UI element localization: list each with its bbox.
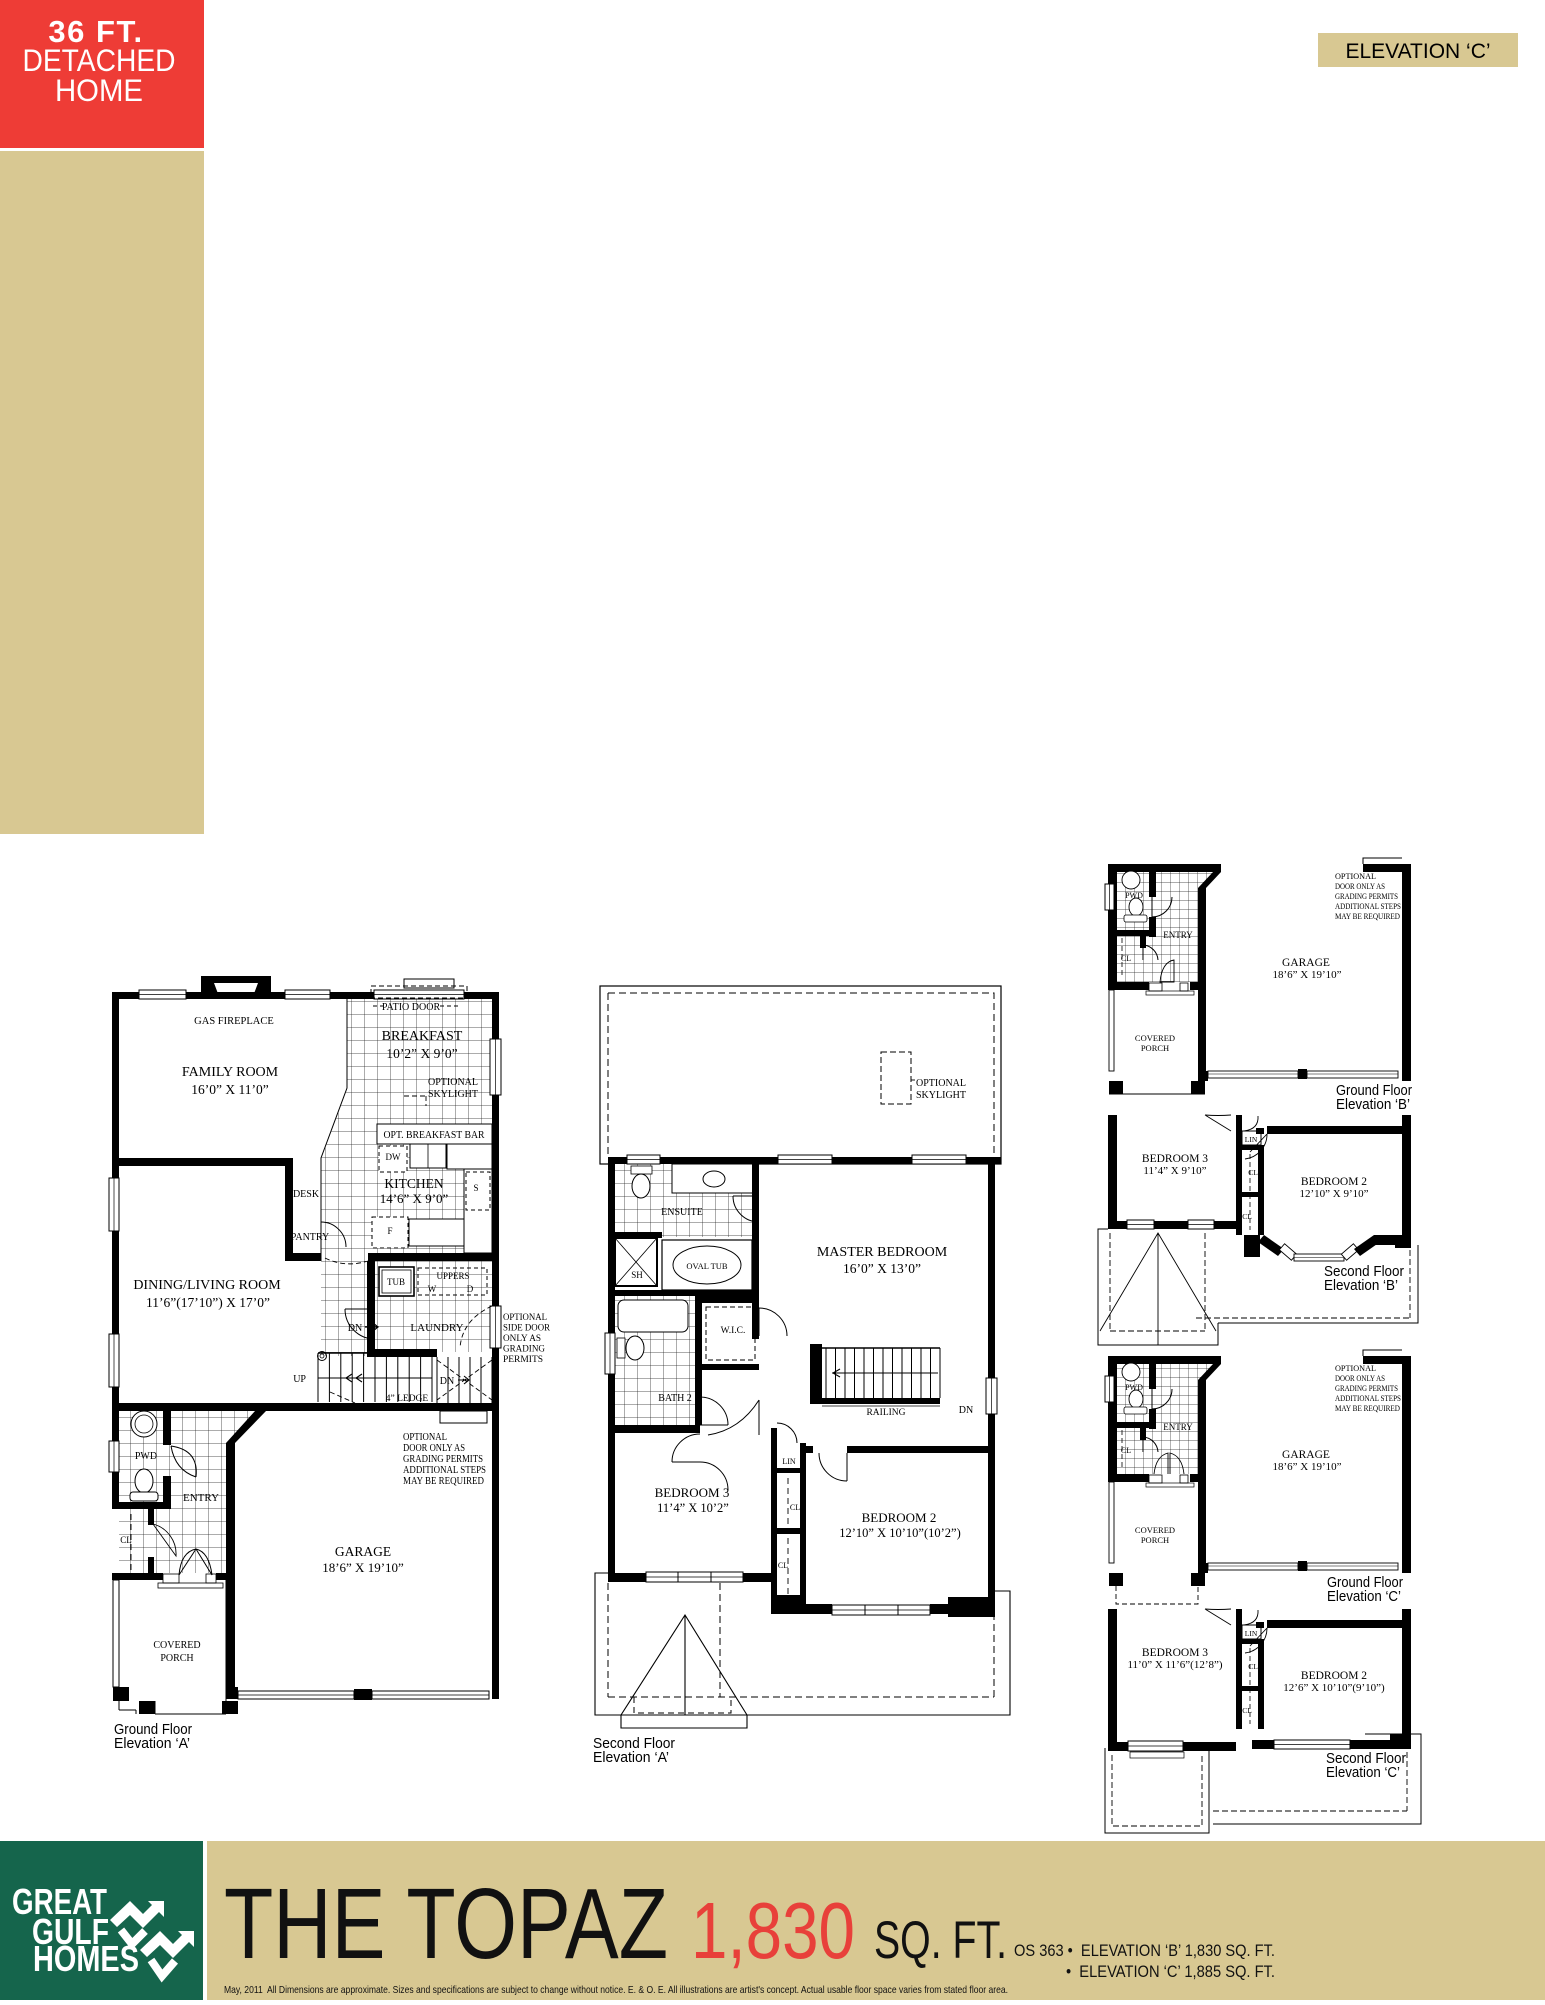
svg-text:SH: SH	[631, 1270, 643, 1280]
svg-text:GARAGE: GARAGE	[1282, 957, 1330, 969]
svg-text:ADDITIONAL STEPS: ADDITIONAL STEPS	[1335, 1393, 1401, 1403]
svg-text:ENTRY: ENTRY	[183, 1492, 219, 1504]
svg-text:LIN: LIN	[1245, 1629, 1258, 1638]
svg-text:ADDITIONAL STEPS: ADDITIONAL STEPS	[1335, 901, 1401, 911]
svg-text:DESK: DESK	[293, 1189, 320, 1200]
svg-text:FAMILY ROOM: FAMILY ROOM	[182, 1065, 279, 1080]
svg-text:SKYLIGHT: SKYLIGHT	[916, 1090, 966, 1101]
svg-text:PWD: PWD	[1125, 1383, 1143, 1392]
svg-text:CL: CL	[1248, 1662, 1258, 1671]
svg-text:11’0” X 11’6”(12’8”): 11’0” X 11’6”(12’8”)	[1127, 1659, 1222, 1671]
svg-text:CL: CL	[790, 1503, 800, 1512]
svg-text:16’0” X 13’0”: 16’0” X 13’0”	[843, 1261, 921, 1276]
svg-text:ENTRY: ENTRY	[1163, 1422, 1193, 1432]
svg-text:COVERED: COVERED	[153, 1640, 200, 1651]
svg-text:PORCH: PORCH	[160, 1653, 193, 1664]
svg-text:18’6” X 19’10”: 18’6” X 19’10”	[322, 1560, 404, 1575]
svg-text:DOOR ONLY AS: DOOR ONLY AS	[1335, 881, 1385, 891]
svg-text:OS 363 • ELEVATION ‘B’ 1,830: OS 363 • ELEVATION ‘B’ 1,830 SQ. FT.	[1014, 1942, 1275, 1960]
svg-text:Elevation ‘C’: Elevation ‘C’	[1327, 1588, 1401, 1605]
svg-text:THE TOPAZ: THE TOPAZ	[224, 1868, 668, 1980]
svg-text:CL: CL	[778, 1561, 788, 1570]
svg-text:10’2” X 9’0”: 10’2” X 9’0”	[386, 1046, 457, 1061]
svg-text:PERMITS: PERMITS	[503, 1355, 543, 1365]
svg-text:COVERED: COVERED	[1135, 1525, 1175, 1535]
svg-text:S: S	[473, 1183, 478, 1193]
svg-text:DN: DN	[959, 1405, 973, 1416]
svg-text:PATIO DOOR: PATIO DOOR	[382, 1002, 441, 1013]
svg-text:12’10” X 9’10”: 12’10” X 9’10”	[1299, 1188, 1368, 1200]
svg-text:DN: DN	[440, 1376, 454, 1387]
svg-text:Elevation ‘A’: Elevation ‘A’	[593, 1749, 669, 1766]
svg-text:COVERED: COVERED	[1135, 1033, 1175, 1043]
svg-text:SKYLIGHT: SKYLIGHT	[428, 1089, 478, 1100]
svg-text:BEDROOM 2: BEDROOM 2	[1301, 1176, 1367, 1188]
svg-text:BEDROOM 2: BEDROOM 2	[1301, 1670, 1367, 1682]
svg-text:GARAGE: GARAGE	[335, 1544, 391, 1559]
svg-text:DOOR ONLY AS: DOOR ONLY AS	[403, 1443, 465, 1454]
svg-text:LIN: LIN	[782, 1457, 796, 1466]
svg-text:CL: CL	[1242, 1706, 1252, 1715]
svg-text:OPTIONAL: OPTIONAL	[916, 1078, 966, 1089]
svg-text:LAUNDRY: LAUNDRY	[410, 1322, 463, 1334]
svg-text:BREAKFAST: BREAKFAST	[382, 1029, 463, 1044]
svg-text:MAY BE REQUIRED: MAY BE REQUIRED	[403, 1476, 484, 1487]
svg-text:KITCHEN: KITCHEN	[384, 1176, 443, 1191]
svg-text:4” LEDGE: 4” LEDGE	[386, 1394, 429, 1404]
svg-text:RAILING: RAILING	[866, 1408, 905, 1418]
svg-text:W: W	[428, 1284, 437, 1294]
svg-text:ADDITIONAL STEPS: ADDITIONAL STEPS	[403, 1465, 486, 1476]
svg-text:HOMES: HOMES	[33, 1938, 139, 1979]
svg-text:ENTRY: ENTRY	[1163, 930, 1193, 940]
svg-text:ONLY AS: ONLY AS	[503, 1334, 541, 1344]
svg-text:11’4” X 10’2”: 11’4” X 10’2”	[657, 1501, 729, 1515]
svg-text:11’4” X 9’10”: 11’4” X 9’10”	[1143, 1165, 1206, 1177]
svg-text:Elevation ‘C’: Elevation ‘C’	[1326, 1764, 1400, 1781]
svg-text:May, 2011 All Dimensions are: May, 2011 All Dimensions are approximate…	[224, 1984, 1008, 1996]
svg-text:OPTIONAL: OPTIONAL	[503, 1313, 547, 1323]
svg-text:DOOR ONLY AS: DOOR ONLY AS	[1335, 1373, 1385, 1383]
svg-text:18’6” X 19’10”: 18’6” X 19’10”	[1272, 1461, 1341, 1473]
svg-text:BATH 2: BATH 2	[658, 1393, 692, 1404]
svg-text:11’6”(17’10”) X 17’0”: 11’6”(17’10”) X 17’0”	[146, 1295, 270, 1310]
svg-text:BEDROOM 3: BEDROOM 3	[655, 1485, 730, 1500]
svg-text:PANTRY: PANTRY	[291, 1232, 330, 1243]
svg-text:OPT. BREAKFAST BAR: OPT. BREAKFAST BAR	[384, 1130, 485, 1141]
svg-text:D: D	[467, 1284, 474, 1294]
svg-text:BEDROOM 3: BEDROOM 3	[1142, 1647, 1208, 1659]
svg-text:ENSUITE: ENSUITE	[661, 1207, 703, 1218]
svg-text:CL: CL	[1248, 1168, 1258, 1177]
svg-text:1,830: 1,830	[691, 1886, 855, 1975]
svg-text:OPTIONAL: OPTIONAL	[428, 1077, 478, 1088]
svg-text:F: F	[387, 1226, 392, 1236]
svg-text:LIN: LIN	[1245, 1135, 1258, 1144]
svg-text:GRADING PERMITS: GRADING PERMITS	[1335, 891, 1398, 901]
svg-text:CL: CL	[1121, 954, 1131, 963]
svg-text:18’6” X 19’10”: 18’6” X 19’10”	[1272, 969, 1341, 981]
svg-text:Elevation ‘B’: Elevation ‘B’	[1336, 1096, 1410, 1113]
svg-text:16’0” X 11’0”: 16’0” X 11’0”	[191, 1082, 268, 1097]
svg-text:MASTER BEDROOM: MASTER BEDROOM	[817, 1245, 948, 1260]
svg-text:BEDROOM 3: BEDROOM 3	[1142, 1153, 1208, 1165]
svg-text:UP: UP	[293, 1374, 306, 1385]
svg-text:PWD: PWD	[135, 1451, 157, 1462]
svg-text:TUB: TUB	[387, 1277, 405, 1287]
svg-text:SIDE DOOR: SIDE DOOR	[503, 1324, 551, 1334]
svg-text:OVAL TUB: OVAL TUB	[686, 1261, 727, 1271]
svg-text:Elevation ‘B’: Elevation ‘B’	[1324, 1277, 1398, 1294]
svg-text:HOME: HOME	[55, 72, 143, 108]
svg-text:SQ. FT.: SQ. FT.	[874, 1911, 1007, 1970]
svg-text:W.I.C.: W.I.C.	[721, 1326, 746, 1336]
svg-text:CL: CL	[120, 1535, 132, 1545]
svg-text:MAY BE REQUIRED: MAY BE REQUIRED	[1335, 1403, 1400, 1413]
svg-text:OPTIONAL: OPTIONAL	[1335, 871, 1376, 881]
svg-text:GARAGE: GARAGE	[1282, 1449, 1330, 1461]
svg-text:DINING/LIVING ROOM: DINING/LIVING ROOM	[133, 1278, 281, 1293]
svg-text:GAS FIREPLACE: GAS FIREPLACE	[194, 1016, 274, 1027]
svg-text:CL: CL	[1242, 1212, 1252, 1221]
svg-text:• ELEVATION ‘C’ 1,885 SQ. FT.: • ELEVATION ‘C’ 1,885 SQ. FT.	[1066, 1963, 1275, 1981]
svg-text:BEDROOM 2: BEDROOM 2	[862, 1510, 937, 1525]
svg-text:12’10” X 10’10”(10’2”): 12’10” X 10’10”(10’2”)	[839, 1526, 960, 1540]
svg-text:GRADING PERMITS: GRADING PERMITS	[403, 1454, 483, 1465]
svg-text:12’6” X 10’10”(9’10”): 12’6” X 10’10”(9’10”)	[1283, 1682, 1385, 1694]
svg-text:CL: CL	[1121, 1446, 1131, 1455]
svg-text:PORCH: PORCH	[1141, 1043, 1169, 1053]
svg-text:14’6” X 9’0”: 14’6” X 9’0”	[380, 1191, 449, 1206]
svg-text:OPTIONAL: OPTIONAL	[1335, 1363, 1376, 1373]
svg-text:UPPERS: UPPERS	[436, 1271, 469, 1281]
svg-text:PWD: PWD	[1125, 891, 1143, 900]
svg-text:Elevation ‘A’: Elevation ‘A’	[114, 1735, 190, 1752]
svg-text:GRADING PERMITS: GRADING PERMITS	[1335, 1383, 1398, 1393]
svg-text:ELEVATION ‘C’: ELEVATION ‘C’	[1345, 40, 1490, 63]
svg-text:DN: DN	[348, 1323, 362, 1334]
svg-text:DW: DW	[386, 1152, 401, 1162]
svg-text:OPTIONAL: OPTIONAL	[403, 1432, 447, 1443]
svg-text:MAY BE REQUIRED: MAY BE REQUIRED	[1335, 911, 1400, 921]
svg-text:PORCH: PORCH	[1141, 1535, 1169, 1545]
svg-text:GRADING: GRADING	[503, 1345, 545, 1355]
